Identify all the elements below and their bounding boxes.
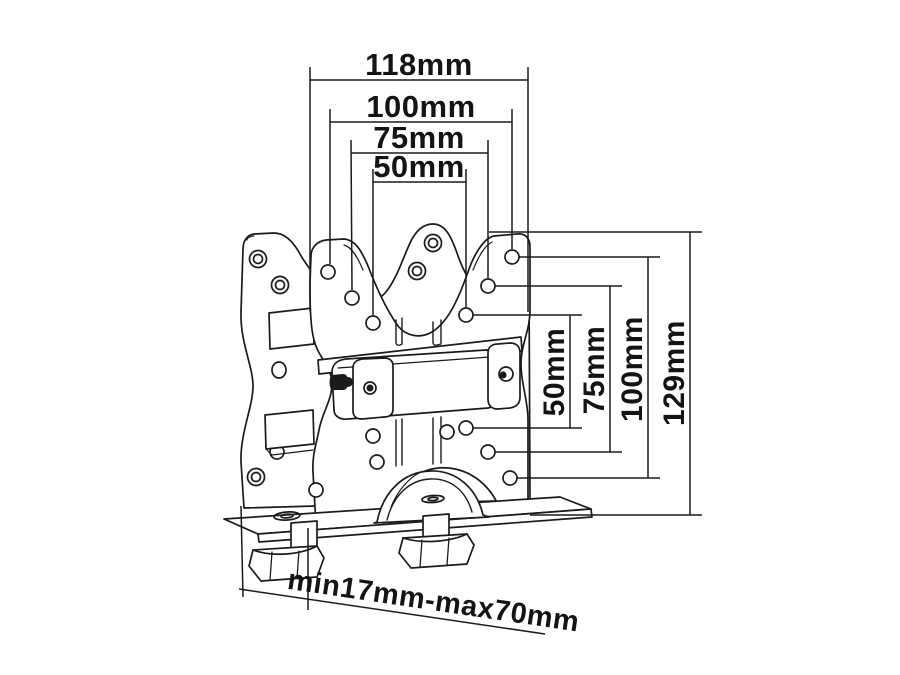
bracket-dimension-diagram: 118mm 100mm 75mm 50mm 50mm 75mm	[0, 0, 900, 675]
side-tab-lower	[265, 410, 314, 449]
clamp-plate-hole-pin	[367, 385, 374, 392]
technical-drawing-page: 118mm 100mm 75mm 50mm 50mm 75mm	[0, 0, 900, 675]
dim-label-50mm-top: 50mm	[373, 149, 465, 184]
dim-label-50mm-side: 50mm	[538, 328, 571, 417]
dim-label-100mm-side: 100mm	[616, 316, 649, 422]
dim-label-118mm: 118mm	[365, 47, 473, 82]
dim-label-100mm: 100mm	[366, 89, 475, 124]
dim-label-129mm-side: 129mm	[658, 320, 691, 426]
side-tab-upper	[269, 308, 314, 349]
dim-label-75mm-side: 75mm	[578, 326, 611, 415]
clamp-screw-pin	[499, 371, 506, 378]
